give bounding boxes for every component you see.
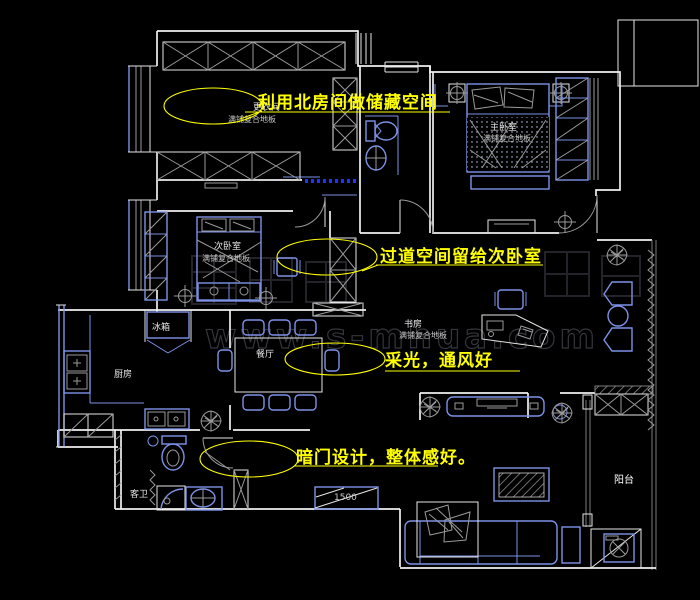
dressing-side-wardrobe xyxy=(333,78,357,150)
floorplan-canvas: www.s-mhua.com xyxy=(0,0,700,600)
kitchen-base-cabinets xyxy=(64,414,113,437)
master-bed-bench xyxy=(471,176,549,189)
shower xyxy=(157,486,185,510)
flower-pot xyxy=(552,403,572,423)
guest-basin xyxy=(186,487,222,510)
radiator-zigzag xyxy=(648,250,654,430)
master-bedroom xyxy=(435,78,598,233)
label-second: 次卧室 xyxy=(214,240,241,252)
annotation-hidden-door: 暗门设计，整体感好。 xyxy=(200,441,476,477)
annotation-corridor: 过道空间留给次卧室 xyxy=(277,239,543,275)
toilet xyxy=(366,121,397,141)
coffee-table xyxy=(494,468,549,501)
stove xyxy=(64,351,90,393)
master-dresser xyxy=(488,220,535,233)
study-bottom-cabinet xyxy=(595,386,653,415)
kitchen-sink xyxy=(145,409,189,429)
label-fridge: 冰箱 xyxy=(152,321,170,333)
annotation-storage-text: 利用北房间做储藏空间 xyxy=(258,92,438,113)
label-study-floor: 满铺复合地板 xyxy=(399,330,447,340)
second-wardrobe xyxy=(145,212,167,300)
sofa-side-table xyxy=(562,527,580,563)
annotation-storage: 利用北房间做储藏空间 xyxy=(164,88,450,124)
floorplan-drawing: www.s-mhua.com xyxy=(0,0,700,600)
guest-toilet xyxy=(148,436,186,470)
plant xyxy=(420,397,440,417)
master-bath xyxy=(365,116,398,175)
plant xyxy=(201,411,221,431)
label-master: 主卧室 xyxy=(490,121,517,133)
dressing-window xyxy=(128,66,157,152)
tv-cabinet xyxy=(447,397,544,416)
annotation-corridor-text: 过道空间留给次卧室 xyxy=(380,246,542,267)
balcony xyxy=(591,529,641,568)
second-bedroom-window xyxy=(128,200,157,290)
hallway-column xyxy=(313,238,363,316)
plant xyxy=(607,245,627,265)
study-armchairs xyxy=(604,282,632,351)
watermark: www.s-mhua.com xyxy=(192,252,640,357)
dressing-bottom-wardrobe xyxy=(157,152,300,180)
second-bedroom-door xyxy=(295,197,325,227)
lamp-symbol xyxy=(554,211,576,233)
label-study: 书房 xyxy=(404,318,422,330)
living-room xyxy=(201,397,580,564)
label-second-floor: 满铺复合地板 xyxy=(202,253,250,263)
dresser-tv xyxy=(205,183,237,188)
label-balcony: 阳台 xyxy=(614,473,634,486)
dimension-1500: 1500 xyxy=(334,493,357,503)
master-bath-door xyxy=(400,200,433,233)
annotation-hidden-door-text: 暗门设计，整体感好。 xyxy=(296,447,476,468)
label-dining: 餐厅 xyxy=(256,348,274,360)
shower-curtain-zigzag xyxy=(150,470,155,505)
entry-column xyxy=(234,470,248,509)
label-master-floor: 满铺复合地板 xyxy=(483,133,531,143)
label-guestbath: 客卫 xyxy=(130,488,148,500)
side-round-table xyxy=(608,306,628,326)
lamp-symbol xyxy=(255,287,277,309)
label-kitchen: 厨房 xyxy=(114,368,132,380)
annotation-light-text: 采光，通风好 xyxy=(384,350,493,371)
washing-machine xyxy=(591,529,641,568)
windows xyxy=(56,66,157,447)
study-chair xyxy=(495,290,526,309)
kitchen-counter xyxy=(90,315,144,403)
dressing-top-wardrobe xyxy=(163,42,345,70)
washbasin xyxy=(366,146,386,170)
sofa xyxy=(405,502,580,564)
